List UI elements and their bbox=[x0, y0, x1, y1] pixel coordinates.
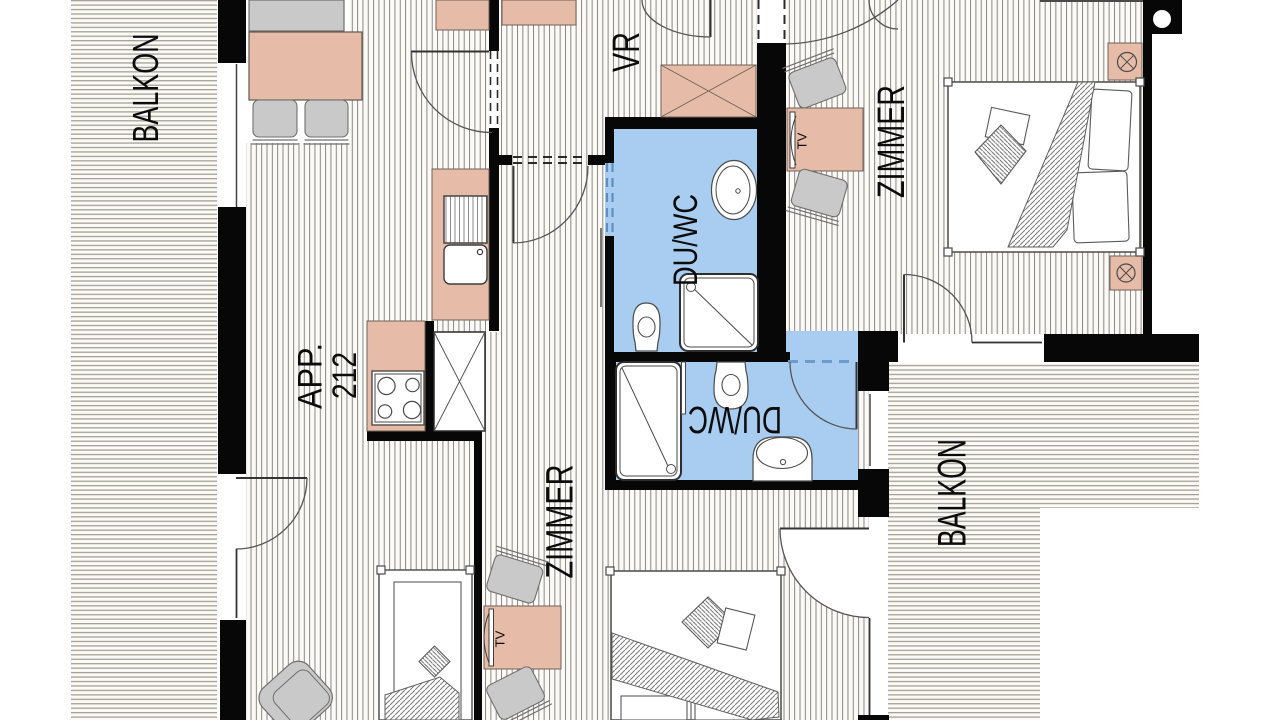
svg-text:ZIMMER: ZIMMER bbox=[540, 465, 582, 579]
svg-text:ZIMMER: ZIMMER bbox=[871, 85, 913, 198]
svg-text:VR: VR bbox=[606, 32, 648, 72]
svg-text:DU/WC: DU/WC bbox=[688, 398, 782, 440]
svg-text:TV: TV bbox=[795, 132, 810, 149]
svg-text:APP.: APP. bbox=[292, 343, 330, 409]
svg-text:DU/WC: DU/WC bbox=[667, 194, 705, 286]
svg-text:BALKON: BALKON bbox=[931, 439, 975, 547]
svg-text:212: 212 bbox=[326, 352, 364, 399]
svg-text:BALKON: BALKON bbox=[125, 34, 166, 143]
svg-text:TV: TV bbox=[493, 630, 508, 647]
